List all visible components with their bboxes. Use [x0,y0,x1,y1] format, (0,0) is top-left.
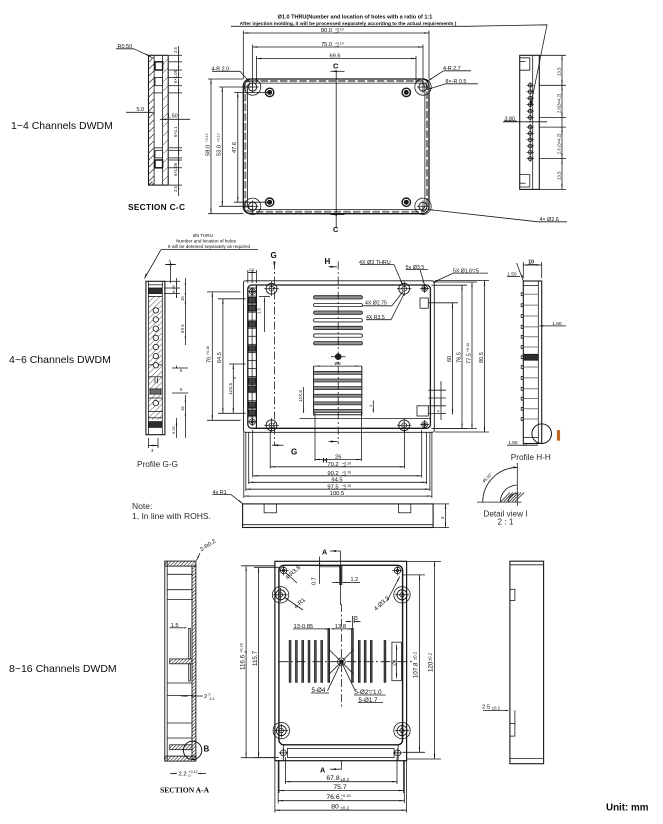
svg-text:5.0: 5.0 [137,107,145,113]
svg-text:Unit: mm: Unit: mm [606,803,649,814]
svg-text:Ø1.0 THRU(Number and location: Ø1.0 THRU(Number and location of holes w… [278,15,433,21]
svg-text:SECTION A-A: SECTION A-A [160,785,210,794]
svg-text:75.7: 75.7 [333,784,346,791]
svg-text:80.0: 80.0 [321,28,332,34]
svg-text:13.5: 13.5 [557,67,562,76]
svg-text:4~6 Channels DWDM: 4~6 Channels DWDM [9,354,111,366]
svg-text:0: 0 [189,774,191,778]
svg-text:47.6: 47.6 [232,142,238,153]
svg-text:115.7: 115.7 [252,650,259,666]
svg-text:A: A [322,547,327,556]
svg-text:Note:: Note: [132,501,152,511]
svg-text:2.5: 2.5 [249,268,254,272]
svg-text:6X 5: 6X 5 [180,324,185,333]
svg-text:6.25: 6.25 [171,425,176,434]
svg-text:2: 2 [204,694,207,700]
svg-text:Profile G-G: Profile G-G [137,460,178,469]
svg-text:97.5: 97.5 [327,484,338,490]
svg-text:2.5: 2.5 [173,47,178,53]
svg-text:Ø5: Ø5 [335,361,342,366]
svg-text:A: A [320,766,325,775]
svg-text:+0.18: +0.18 [240,643,244,653]
svg-text:+0.10: +0.10 [206,346,210,355]
svg-text:Profile H-H: Profile H-H [511,453,551,462]
svg-text:±0.2: ±0.2 [428,652,433,661]
svg-text:2.6(3×4.2): 2.6(3×4.2) [557,93,562,113]
svg-text:G: G [291,448,297,457]
svg-text:2.6 (3×4.2): 2.6 (3×4.2) [557,133,562,154]
svg-text:80: 80 [331,804,339,811]
svg-text:75.0: 75.0 [321,42,332,48]
svg-text:64.5: 64.5 [217,352,223,363]
svg-text:1.5: 1.5 [257,308,262,314]
svg-text:SECTION C-C: SECTION C-C [128,202,185,212]
svg-text:0.7: 0.7 [311,577,317,585]
svg-text:Number and location of holes: Number and location of holes [176,239,236,244]
svg-text:G: G [271,251,277,260]
svg-text:15: 15 [180,296,185,301]
svg-text:−0: −0 [335,30,339,34]
svg-text:116.6: 116.6 [239,654,246,670]
svg-text:−0: −0 [342,465,346,469]
svg-text:+0.10: +0.10 [216,133,220,142]
svg-text:107.8: 107.8 [413,662,420,678]
svg-text:2.5: 2.5 [173,186,178,192]
svg-text:1, In line with ROHS.: 1, In line with ROHS. [132,511,211,521]
svg-text:12X.5: 12X.5 [228,383,233,395]
svg-text:C: C [333,225,339,234]
svg-text:1.50: 1.50 [167,114,178,120]
svg-text:C: C [333,61,339,70]
svg-text:58.0: 58.0 [205,145,211,156]
svg-text:60: 60 [447,356,453,362]
svg-text:69.6: 69.6 [330,53,341,59]
svg-text:-0.1: -0.1 [209,697,215,701]
svg-text:80.5: 80.5 [479,352,485,363]
svg-text:6.25: 6.25 [171,284,176,293]
svg-text:3.80: 3.80 [505,117,516,123]
svg-text:−0: −0 [335,44,339,48]
svg-text:+0.10: +0.10 [466,343,470,352]
svg-text:±0.2: ±0.2 [341,777,350,782]
svg-text:6×1.1: 6×1.1 [173,126,178,137]
svg-text:+0.10: +0.10 [205,133,209,142]
svg-text:76.6: 76.6 [326,794,339,801]
svg-text:90.2: 90.2 [327,471,338,477]
svg-text:1~4 Channels DWDM: 1~4 Channels DWDM [11,120,113,132]
svg-text:70: 70 [207,357,213,363]
svg-text:70.2: 70.2 [327,462,338,468]
svg-text:8~16 Channels DWDM: 8~16 Channels DWDM [9,663,117,675]
svg-text:100.5: 100.5 [330,491,345,497]
svg-text:94.5: 94.5 [331,477,342,483]
svg-text:Ø3 THRU: Ø3 THRU [193,233,213,238]
svg-text:26: 26 [335,455,341,461]
svg-text:2.2: 2.2 [179,772,187,778]
svg-text:13.5: 13.5 [557,171,562,180]
svg-text:77.5: 77.5 [466,353,472,364]
svg-text:120: 120 [428,661,435,672]
svg-text:+0.12: +0.12 [189,770,198,774]
svg-text:H: H [325,257,331,266]
svg-text:2.5: 2.5 [482,705,490,711]
svg-text:76.5: 76.5 [456,352,462,363]
svg-text:B: B [204,745,210,754]
svg-text:0: 0 [244,651,248,653]
svg-text:4x R1: 4x R1 [213,490,227,496]
svg-text:25: 25 [391,660,397,666]
svg-text:15: 15 [180,406,185,411]
svg-text:12X.5: 12X.5 [298,390,303,402]
svg-text:6×1.05: 6×1.05 [173,69,178,83]
svg-text:2 : 1: 2 : 1 [498,518,514,527]
svg-text:±0.2: ±0.2 [413,651,418,660]
svg-text:It will be deteined separately: It will be deteined separately as requir… [168,244,251,249]
svg-text:67.8: 67.8 [326,775,339,782]
svg-text:53.0: 53.0 [217,145,223,156]
svg-text:0: 0 [209,693,211,697]
svg-text:±0.2: ±0.2 [341,805,350,810]
svg-text:6×1.05: 6×1.05 [173,162,178,176]
svg-text:±0.2: ±0.2 [492,705,501,710]
